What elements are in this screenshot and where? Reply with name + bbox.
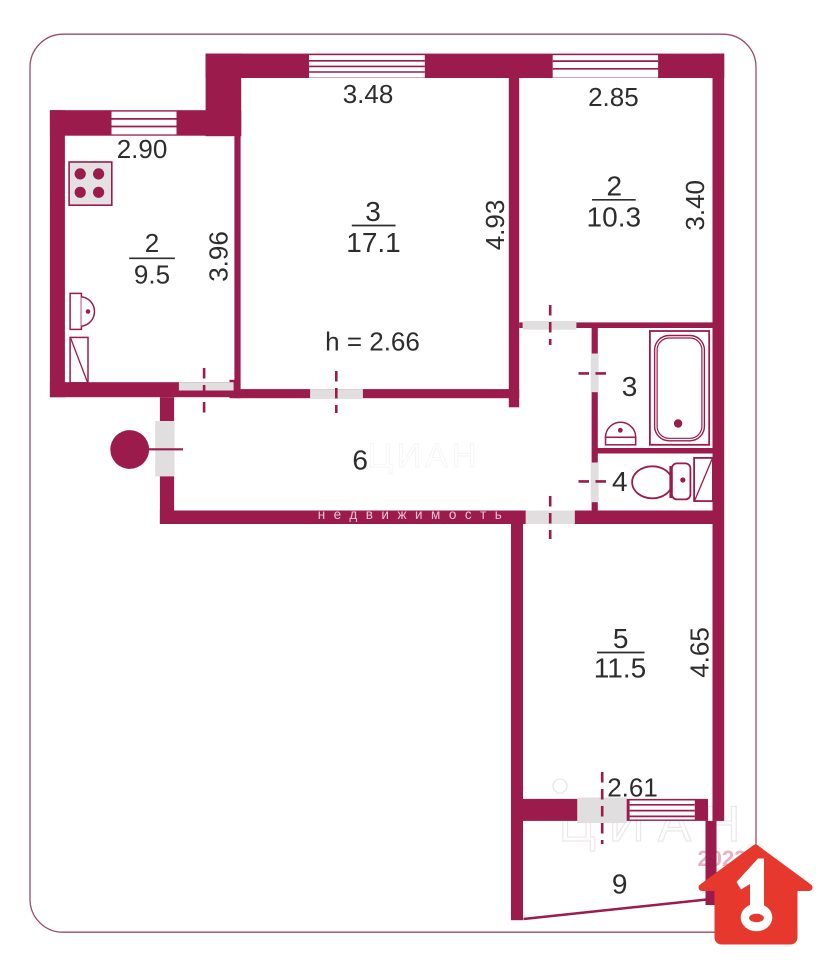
- svg-text:2.90: 2.90: [117, 134, 168, 164]
- svg-text:9.5: 9.5: [134, 260, 170, 290]
- svg-text:3: 3: [622, 371, 638, 402]
- svg-text:2: 2: [145, 228, 159, 258]
- svg-text:2.85: 2.85: [588, 82, 639, 112]
- svg-text:5: 5: [613, 623, 629, 654]
- svg-text:3.96: 3.96: [204, 231, 234, 282]
- svg-text:3.40: 3.40: [680, 180, 710, 231]
- svg-text:4.65: 4.65: [685, 627, 715, 678]
- svg-text:3: 3: [365, 196, 381, 227]
- svg-text:h = 2.66: h = 2.66: [325, 327, 420, 357]
- svg-text:4.93: 4.93: [480, 200, 510, 251]
- svg-text:2.61: 2.61: [607, 773, 658, 803]
- svg-text:3.48: 3.48: [343, 79, 394, 109]
- svg-text:10.3: 10.3: [587, 201, 642, 232]
- svg-text:17.1: 17.1: [346, 227, 401, 258]
- svg-text:4: 4: [612, 466, 628, 497]
- svg-text:недвижимость: недвижимость: [318, 507, 511, 522]
- svg-text:9: 9: [612, 869, 628, 900]
- svg-text:11.5: 11.5: [594, 653, 646, 684]
- svg-text:ЦИАН: ЦИАН: [368, 437, 481, 475]
- svg-text:6: 6: [352, 445, 368, 476]
- svg-text:2: 2: [607, 171, 623, 202]
